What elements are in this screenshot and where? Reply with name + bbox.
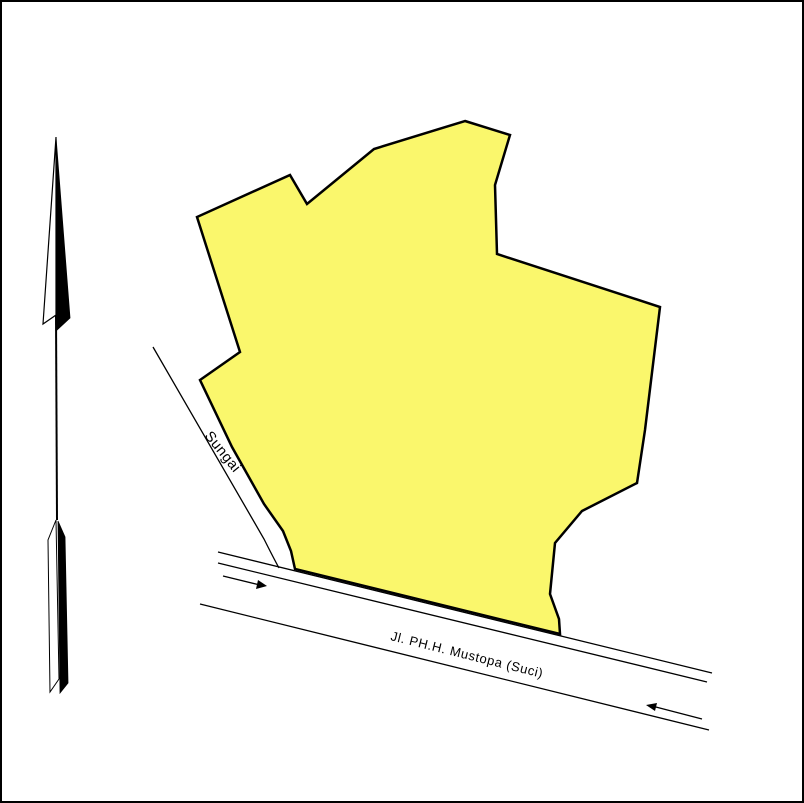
traffic-arrow-right-icon <box>223 576 267 589</box>
traffic-arrow-right-shaft <box>223 576 260 585</box>
north-arrow-tail-black <box>58 521 68 693</box>
north-arrow-head-white <box>43 137 56 324</box>
north-arrow-head-black <box>56 137 70 330</box>
traffic-arrow-left-shaft <box>652 706 702 719</box>
north-arrow-tail-white <box>48 520 59 692</box>
north-arrow-shaft <box>56 315 57 520</box>
road-bottom-edge-line <box>200 604 709 730</box>
traffic-arrow-left-head <box>646 703 657 711</box>
parcel-polygon <box>197 121 660 634</box>
traffic-arrow-right-head <box>256 580 267 589</box>
parcel <box>197 121 660 634</box>
map-frame: Sungai Jl. PH.H. Mustopa (Suci) <box>0 0 804 803</box>
north-arrow-icon <box>43 137 70 693</box>
site-map-canvas: Sungai Jl. PH.H. Mustopa (Suci) <box>2 2 804 803</box>
